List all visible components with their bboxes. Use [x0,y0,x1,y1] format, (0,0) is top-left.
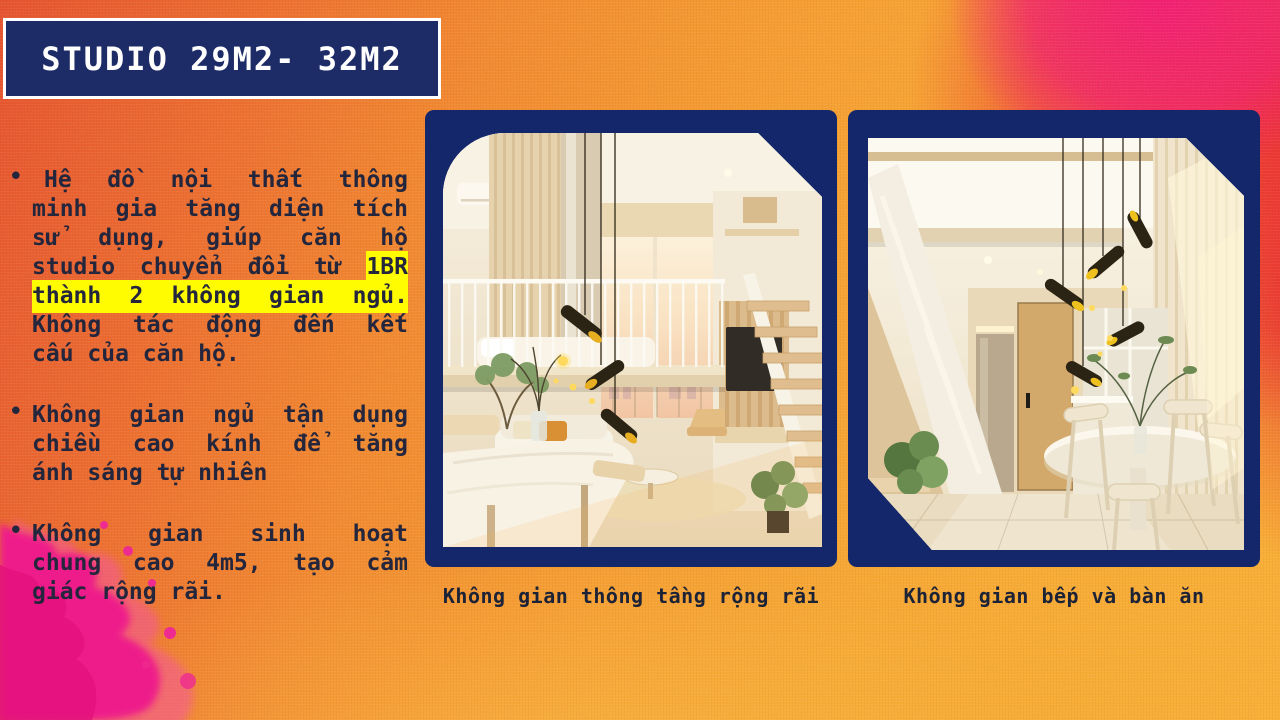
photo-frame [848,110,1260,567]
bullet-text: Hệ đồ nội thất thôngminh gia tăng diện t… [32,166,408,369]
bullet-text: Không gian sinh hoạtchung cao 4m5, tạo c… [32,520,408,607]
bullet-list: • Hệ đồ nội thất thôngminh gia tăng diện… [6,166,408,639]
bullet-icon: • [8,398,24,427]
slide-title: STUDIO 29M2- 32M2 [41,40,403,78]
figure-kitchen: Không gian bếp và bàn ăn [848,110,1260,608]
bullet-icon: • [8,517,24,546]
kitchen-photo [868,138,1244,550]
title-box: STUDIO 29M2- 32M2 [3,18,441,99]
photo-frame [425,110,837,567]
figure-caption: Không gian thông tầng rộng rãi [425,584,837,608]
loft-photo [443,133,822,547]
figure-caption: Không gian bếp và bàn ăn [848,584,1260,608]
bullet-item-3: • Không gian sinh hoạtchung cao 4m5, tạo… [6,520,408,607]
loft-photo-illustration [443,133,822,547]
slide: STUDIO 29M2- 32M2 • Hệ đồ nội thất thông… [0,0,1280,720]
figure-loft: Không gian thông tầng rộng rãi [425,110,837,608]
bullet-icon: • [8,163,24,192]
bullet-text: Không gian ngủ tận dụngchiều cao kính để… [32,401,408,488]
bullet-item-2: • Không gian ngủ tận dụngchiều cao kính … [6,401,408,488]
bullet-item-1: • Hệ đồ nội thất thôngminh gia tăng diện… [6,166,408,369]
kitchen-photo-illustration [868,138,1244,550]
